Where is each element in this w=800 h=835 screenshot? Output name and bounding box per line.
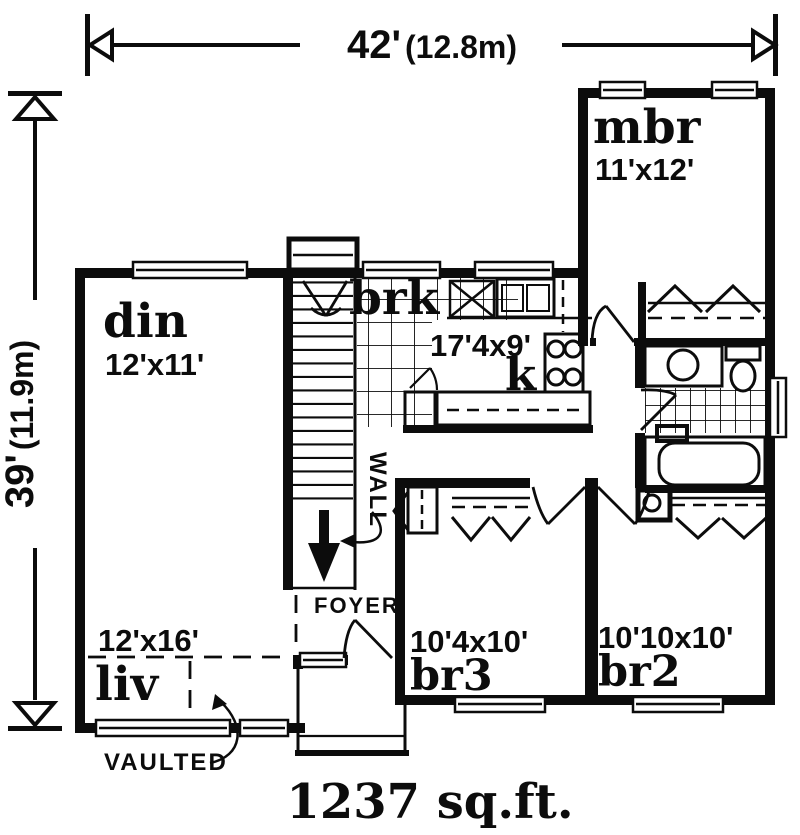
foyer-annotation: FOYER (314, 593, 400, 618)
floor-plan-page: 42'(12.8m) 39'(11.9m) (0, 0, 800, 835)
room-label-mbr: mbr (593, 100, 702, 155)
wall-mbr-closet-west (638, 282, 646, 340)
room-label-din: din (103, 294, 188, 349)
br2-window (633, 697, 723, 712)
linen-closet (638, 490, 670, 520)
room-size-br2: 10'10x10' (598, 620, 733, 655)
mbr-closet-bifold-icon (706, 286, 760, 312)
chimney (289, 239, 357, 270)
mbr-door (592, 306, 634, 342)
br2-closet-bifold-icon (722, 518, 766, 538)
stair-down-arrow-icon (308, 510, 340, 582)
mbr-window-2 (712, 82, 757, 98)
room-label-kitchen: k (505, 348, 537, 401)
top-dimension: 42'(12.8m) (85, 14, 778, 76)
mbr-window-1 (600, 82, 645, 98)
liv-window-1 (96, 720, 230, 736)
bath-window (770, 378, 786, 437)
din-window (133, 262, 247, 278)
total-area-label: 1237 sq.ft. (286, 774, 573, 830)
stove (545, 334, 583, 392)
wall-left-exterior (75, 268, 85, 733)
room-size-mbr: 11'x12' (595, 152, 694, 187)
room-label-liv: liv (95, 657, 160, 712)
front-door (344, 620, 392, 658)
room-size-liv: 12'x16' (98, 623, 199, 658)
porch (295, 665, 409, 756)
brk-window-2 (475, 262, 553, 278)
floor-plan-drawing: 42'(12.8m) 39'(11.9m) (0, 0, 800, 835)
wall-br-divider (585, 483, 598, 705)
br3-closet-bifold-icon (492, 517, 530, 540)
bath-sink (668, 350, 698, 380)
left-dimension: 39'(11.9m) (0, 91, 62, 731)
liv-window-2 (240, 720, 288, 736)
vaulted-annotation: VAULTED (104, 749, 228, 776)
bathtub (645, 437, 765, 490)
width-dimension-label: 42'(12.8m) (347, 23, 517, 67)
mbr-closet-bifold-icon (648, 286, 702, 312)
wall-arrowhead-icon (340, 534, 355, 548)
br3-door (533, 487, 585, 524)
room-size-din: 12'x11' (105, 347, 204, 382)
br3-closet-bifold-icon (452, 517, 490, 540)
toilet (726, 346, 760, 391)
foyer-sidelight-window (300, 653, 346, 667)
wall-mbr-left (578, 88, 588, 346)
wall-din-right (283, 268, 293, 590)
room-label-brk: brk (349, 271, 441, 326)
height-dimension-label: 39'(11.9m) (0, 340, 42, 508)
wall-annotation: WALL (364, 452, 391, 528)
room-size-br3: 10'4x10' (410, 624, 528, 659)
br2-closet-bifold-icon (676, 518, 720, 538)
